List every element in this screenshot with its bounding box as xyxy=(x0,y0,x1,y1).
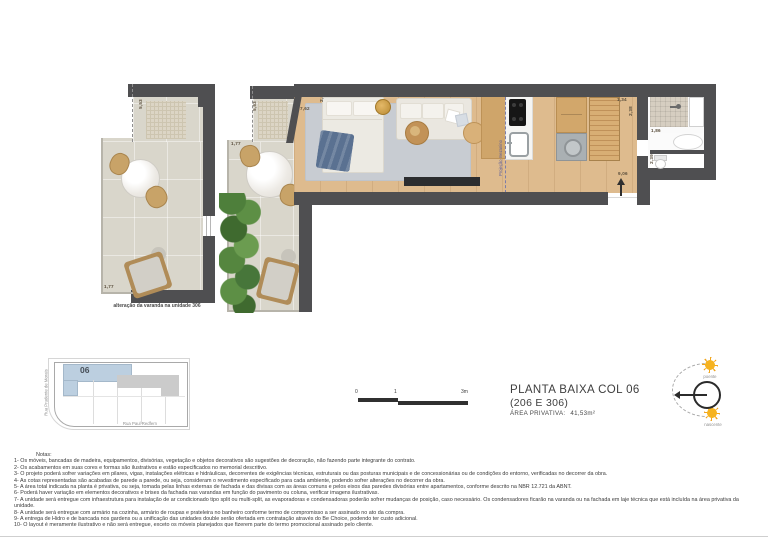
sofa-cushion xyxy=(422,103,444,119)
dim-wc-depth: 2,39 xyxy=(647,146,655,172)
planter-trellis xyxy=(258,101,288,139)
projection-dashed-line xyxy=(132,84,133,142)
private-area-value: 41,53m² xyxy=(570,410,595,417)
notes-block: Notas: 1- Os móveis, bancadas de madeira… xyxy=(14,452,760,529)
entrance-arrow-icon xyxy=(617,178,625,185)
plants xyxy=(219,193,261,313)
scale-three: 3m xyxy=(461,389,468,395)
private-area: ÁREA PRIVATIVA: 41,53m² xyxy=(510,410,595,417)
private-area-label: ÁREA PRIVATIVA: xyxy=(510,410,565,417)
compass-bottom-label: nascente xyxy=(697,422,729,427)
wall xyxy=(637,84,648,140)
site-gray-area xyxy=(161,388,179,396)
dim-total-length: 9,06 xyxy=(618,171,628,176)
mezzanine-projection-label: Projeção mezanino xyxy=(496,133,504,183)
shower-arm-icon xyxy=(670,106,677,108)
scale-one: 1 xyxy=(394,389,397,395)
site-division-line xyxy=(141,388,142,424)
site-division-line xyxy=(165,396,166,424)
floor-plan-page: 5,53 1,77 alteração da varanda na unidad… xyxy=(0,0,768,543)
entrance-arrow-stem xyxy=(620,185,622,196)
wall xyxy=(704,84,716,180)
dim-balcony306-width: 1,77 xyxy=(104,284,114,289)
scale-segment xyxy=(358,398,398,402)
parapet-edge xyxy=(101,292,133,294)
note-item: 7- A unidade será entregue com infraestr… xyxy=(14,497,760,510)
parapet-edge xyxy=(101,138,103,294)
page-subtitle: (206 E 306) xyxy=(510,397,568,409)
mezzanine-projection-line xyxy=(505,97,507,193)
page-border-bottom xyxy=(0,536,768,537)
compass-top-label: poente xyxy=(696,374,724,379)
note-item: 10- O layout é meramente ilustrativo e n… xyxy=(14,522,760,528)
cooktop xyxy=(509,99,526,126)
site-division-line xyxy=(63,396,185,397)
site-division-line xyxy=(93,380,94,424)
site-unit-label: 06 xyxy=(80,365,100,375)
wall xyxy=(294,192,608,205)
dim-living-length: 7,62 xyxy=(300,106,310,111)
staircase xyxy=(589,97,620,161)
throw-blanket xyxy=(316,130,355,172)
shower xyxy=(650,97,688,127)
wall xyxy=(203,236,215,294)
sofa-cushion xyxy=(400,103,422,119)
duvet-fold xyxy=(322,119,382,120)
wardrobe-cabinet xyxy=(556,97,587,133)
coffee-table xyxy=(405,121,429,145)
kitchen-sink xyxy=(509,132,529,157)
dim-balcony206-depth: 5,53 xyxy=(250,93,258,119)
side-table-gold xyxy=(375,99,391,115)
scale-segment xyxy=(398,401,468,405)
washer xyxy=(556,133,587,161)
toilet xyxy=(655,159,666,169)
shower-glass xyxy=(689,97,704,127)
wall xyxy=(294,84,716,97)
pillow xyxy=(326,101,352,116)
tv-console xyxy=(404,177,480,186)
street-label-left: Rua Prudente de Morais xyxy=(44,363,49,423)
dim-balcony306-depth: 5,53 xyxy=(136,91,144,117)
scale-zero: 0 xyxy=(355,389,358,395)
planter-trellis xyxy=(146,101,186,139)
wall xyxy=(637,180,650,205)
balcony-306-caption: alteração da varanda na unidade 306 xyxy=(96,303,218,309)
sun-icon-west xyxy=(702,357,718,373)
window xyxy=(203,216,215,236)
bathtub xyxy=(673,134,703,150)
wall xyxy=(203,94,215,216)
street-label-bottom: Rua Paul Redfern xyxy=(105,421,175,426)
page-title: PLANTA BAIXA COL 06 xyxy=(510,384,640,396)
dim-balcony206-width: 1,77 xyxy=(231,141,241,146)
north-arrow-icon xyxy=(674,391,680,399)
site-gray-area xyxy=(117,375,179,388)
entrance-threshold xyxy=(608,197,637,198)
site-division-line xyxy=(117,388,118,424)
site-unit-06-highlight-notch xyxy=(63,380,78,396)
north-arrow-line xyxy=(679,394,707,396)
dim-bath-depth: 2,38 xyxy=(626,98,634,124)
